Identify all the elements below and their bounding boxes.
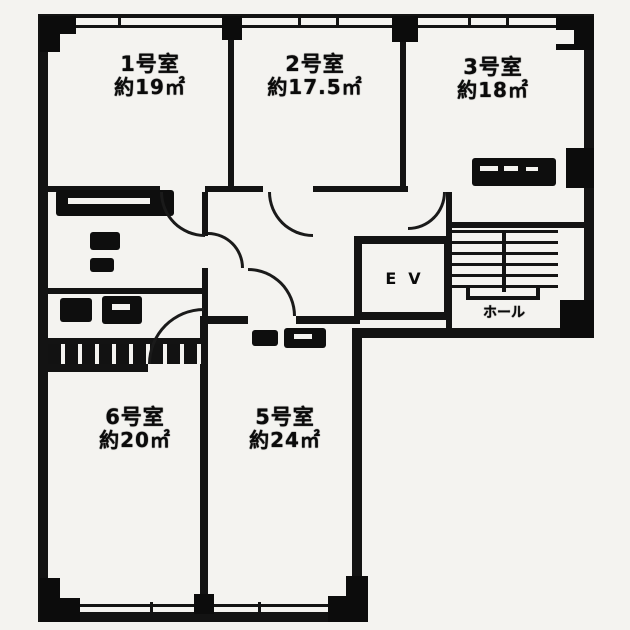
- stairs-landing: [536, 288, 540, 300]
- wall-step: [352, 328, 594, 338]
- wall-segment: [205, 186, 263, 192]
- room-6-area: 約20㎡: [55, 429, 215, 452]
- room-2-name: 2号室: [230, 52, 400, 76]
- utility-fixture: [90, 258, 114, 272]
- room-5-area: 約24㎡: [212, 429, 358, 452]
- hall-label: ホール: [452, 302, 556, 324]
- door-arc-room5: [248, 268, 296, 316]
- room-1-area: 約19㎡: [70, 76, 230, 99]
- wall-segment: [313, 186, 408, 192]
- room-5: [208, 324, 352, 612]
- room-label-3: 3号室 約18㎡: [408, 55, 578, 102]
- counter-slit: [68, 198, 150, 204]
- stairs-divider: [502, 230, 506, 292]
- wc-fixture: [60, 298, 92, 322]
- room-6-name: 6号室: [55, 405, 215, 429]
- room-5-name: 5号室: [212, 405, 358, 429]
- door-arc-utility: [208, 232, 244, 268]
- wall-utility-divider: [48, 288, 204, 294]
- pillar-step-corner: [560, 300, 594, 338]
- room-2-area: 約17.5㎡: [230, 76, 400, 99]
- room-3: [406, 28, 584, 186]
- wc-slit: [112, 304, 130, 310]
- wall-room5-top: [296, 316, 360, 324]
- window-tick: [468, 14, 471, 28]
- wall-under-room3: [446, 222, 584, 228]
- floor-plan: EV ホール 1号室 約19㎡ 2号室 約17.5㎡ 3号室 約18㎡: [0, 0, 630, 630]
- room-3-area: 約18㎡: [408, 79, 578, 102]
- elevator-label: EV: [362, 244, 444, 312]
- window-tick: [336, 14, 339, 28]
- window-tick: [506, 14, 509, 28]
- stairs-landing: [466, 296, 540, 300]
- stairs-landing: [466, 288, 470, 300]
- wall-top-outer: [38, 14, 594, 18]
- window-tick: [118, 14, 121, 28]
- wc-fixture: [102, 296, 142, 324]
- door-arc-vestibule: [408, 192, 446, 230]
- room-3-name: 3号室: [408, 55, 578, 79]
- door-arc-room1: [160, 192, 205, 237]
- wall-left: [38, 14, 48, 622]
- window-tick: [298, 14, 301, 28]
- room-label-2: 2号室 約17.5㎡: [230, 52, 400, 99]
- room-label-5: 5号室 約24㎡: [212, 405, 358, 452]
- door-arc-room2: [268, 192, 313, 237]
- wall-room5-top: [208, 316, 248, 324]
- utility-fixture: [90, 232, 120, 250]
- room-1-name: 1号室: [70, 52, 230, 76]
- wall-room6-top: [48, 364, 148, 372]
- room-label-1: 1号室 約19㎡: [70, 52, 230, 99]
- room-label-6: 6号室 約20㎡: [55, 405, 215, 452]
- door-arc-room6: [148, 308, 204, 364]
